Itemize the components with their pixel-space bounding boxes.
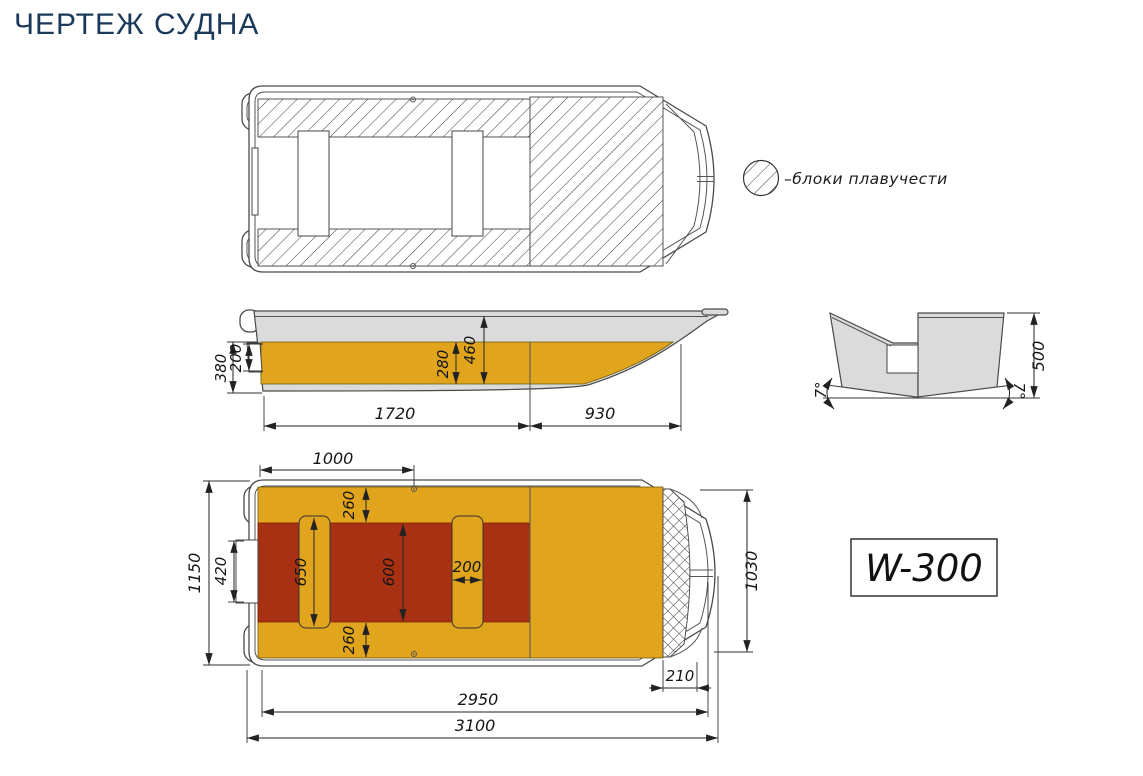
top-view (242, 86, 714, 272)
dim-deadrise-left: 7° (812, 381, 830, 398)
plan-view: 1000 260 260 650 600 200 420 1150 1030 2… (185, 449, 761, 743)
transom-plate (252, 148, 258, 215)
dim-930: 930 (585, 404, 616, 423)
legend-hatched-circle-icon (744, 161, 779, 196)
dim-3100: 3100 (455, 716, 496, 735)
dim-460: 460 (461, 336, 479, 365)
dim-1030: 1030 (742, 551, 761, 592)
dim-280: 280 (434, 350, 452, 379)
dim-1000: 1000 (313, 449, 354, 468)
dim-1720: 1720 (375, 404, 416, 423)
dim-2950: 2950 (458, 690, 499, 709)
model-label: W-300 (865, 547, 983, 590)
transom-body-starboard (918, 313, 1004, 397)
dim-500: 500 (1029, 341, 1048, 372)
legend: –блоки плавучести (744, 161, 948, 196)
dim-650: 650 (292, 558, 310, 587)
dim-210: 210 (666, 667, 695, 685)
model-plate: W-300 (851, 539, 997, 596)
dim-600: 600 (380, 558, 398, 587)
transom-plate (236, 540, 258, 603)
dim-200: 200 (453, 558, 482, 576)
dim-200: 200 (227, 344, 245, 373)
legend-label: –блоки плавучести (784, 170, 948, 188)
motor-notch (887, 345, 918, 373)
side-view: 380 200 280 460 1720 930 (212, 309, 728, 431)
dim-260-bottom: 260 (340, 626, 358, 655)
drawing-page: ЧЕРТЕЖ СУДНА (0, 0, 1143, 776)
dim-420: 420 (212, 557, 230, 586)
transom-view: 500 7° 7° (812, 313, 1048, 409)
bow-mesh-block (663, 489, 690, 657)
dim-1150: 1150 (185, 553, 204, 594)
bow-rail-lip (702, 309, 728, 315)
dim-deadrise-right: 7° (1010, 382, 1028, 399)
dim-260-top: 260 (340, 491, 358, 520)
boat-drawing: –блоки плавучести (0, 0, 1143, 776)
